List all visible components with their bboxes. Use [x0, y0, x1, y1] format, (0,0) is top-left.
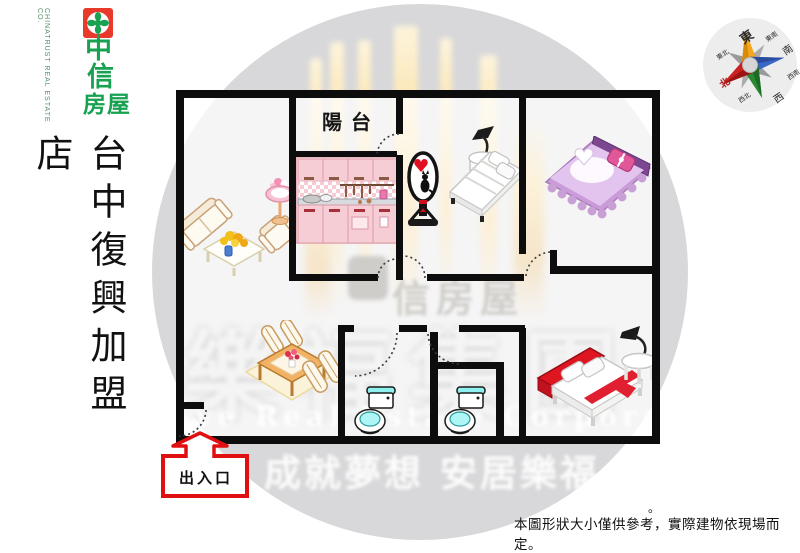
store-title: 台中復興加盟店 [24, 134, 132, 464]
logo-char-1: 中 [85, 36, 112, 63]
disclaimer-text: 本圖形狀大小僅供參考，實際建物依現場而定。 [514, 513, 800, 553]
logo-chars-34: 房屋 [83, 93, 131, 116]
entrance-label: 出入口 [179, 467, 233, 488]
logo-char-2: 信 [87, 64, 114, 91]
balcony-label: 陽台 [322, 106, 380, 135]
logo-english-text: CHINATRUST REAL ESTATE CO. [36, 8, 50, 124]
entrance-marker [158, 430, 258, 502]
compass: 東 東南 南 西南 西 西北 北 東北 [700, 14, 800, 118]
floorplan-page: 信房屋 樂福集團 ve Real Estate Corporation 成就夢想… [0, 0, 800, 553]
